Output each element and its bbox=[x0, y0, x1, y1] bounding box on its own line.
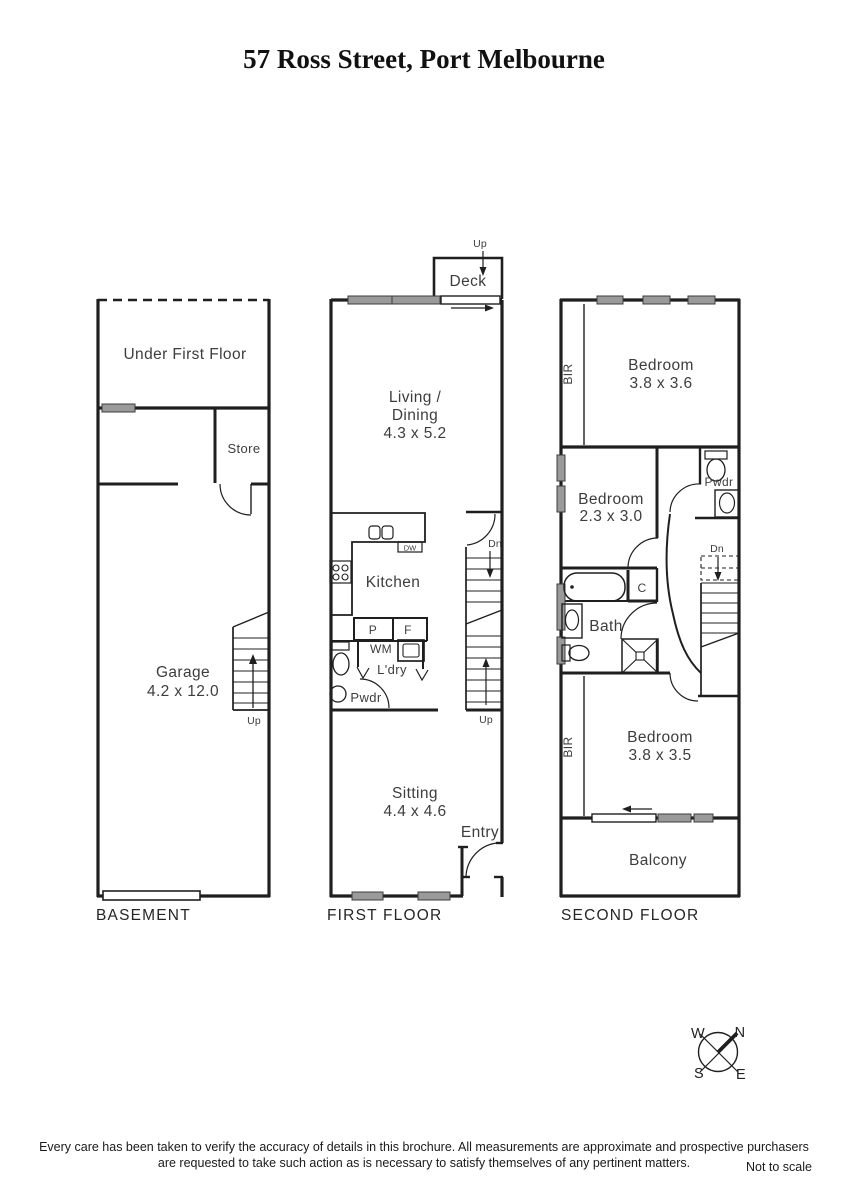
bed1-dims: 3.8 x 3.6 bbox=[629, 375, 692, 392]
floor-plan-svg: Under First Floor Store Garage 4.2 x 12.… bbox=[0, 0, 848, 1200]
kitchen-bench bbox=[330, 513, 425, 615]
window bbox=[557, 637, 565, 664]
toilet-icon bbox=[705, 451, 727, 459]
window bbox=[557, 455, 565, 481]
under-first-floor-label: Under First Floor bbox=[123, 346, 246, 363]
window bbox=[557, 486, 565, 512]
sitting-dims: 4.4 x 4.6 bbox=[383, 803, 446, 820]
washing-machine-label: WM bbox=[370, 642, 392, 656]
deck-label: Deck bbox=[450, 273, 487, 290]
kitchen-label: Kitchen bbox=[366, 574, 421, 591]
bath-label: Bath bbox=[589, 618, 623, 635]
compass-south-label: S bbox=[694, 1066, 704, 1082]
compass-north-label: N bbox=[735, 1025, 746, 1041]
store-label: Store bbox=[227, 441, 260, 456]
sitting-label: Sitting bbox=[392, 785, 438, 802]
washing-machine-icon bbox=[398, 640, 424, 661]
garage-dims: 4.2 x 12.0 bbox=[147, 683, 219, 700]
compass-east-label: E bbox=[736, 1067, 746, 1083]
compass-icon: W N S E bbox=[691, 1025, 746, 1083]
first-floor-label: FIRST FLOOR bbox=[327, 907, 442, 924]
basement-up-arrow-icon bbox=[249, 654, 257, 708]
garage-door bbox=[103, 891, 200, 900]
cooktop-icon bbox=[330, 561, 351, 583]
window bbox=[418, 892, 450, 900]
up-label: Up bbox=[479, 714, 493, 726]
basement-window bbox=[102, 404, 135, 412]
disclaimer-line-2: are requested to take such action as is … bbox=[0, 1155, 848, 1171]
deck-up-label: Up bbox=[473, 238, 487, 250]
bed3-dims: 3.8 x 3.5 bbox=[628, 747, 691, 764]
bed2-dims: 2.3 x 3.0 bbox=[579, 508, 642, 525]
window bbox=[352, 892, 383, 900]
dn-label: Dn bbox=[710, 543, 724, 555]
window bbox=[643, 296, 670, 304]
window bbox=[392, 296, 440, 304]
fridge-label: F bbox=[404, 623, 412, 637]
disclaimer-line-1: Every care has been taken to verify the … bbox=[0, 1139, 848, 1155]
basement-up-label: Up bbox=[247, 715, 261, 727]
living-label-2: Dining bbox=[392, 407, 438, 424]
second-floor-stairs-icon bbox=[701, 556, 739, 696]
second-floor-label: SECOND FLOOR bbox=[561, 907, 699, 924]
living-label-1: Living / bbox=[389, 389, 442, 406]
living-dims: 4.3 x 5.2 bbox=[383, 425, 446, 442]
cupboard-label: C bbox=[637, 581, 646, 595]
window bbox=[348, 296, 392, 304]
disclaimer: Every care has been taken to verify the … bbox=[0, 1139, 848, 1171]
slider-arrow-icon bbox=[622, 806, 652, 813]
bir-top-label: BIR bbox=[561, 363, 575, 384]
balcony-label: Balcony bbox=[629, 852, 687, 869]
bed1-label: Bedroom bbox=[628, 357, 694, 374]
bed3-label: Bedroom bbox=[627, 729, 693, 746]
second-floor-plan: BIR Bedroom 3.8 x 3.6 Bedroom 2.3 x 3.0 … bbox=[557, 296, 740, 924]
compass-west-label: W bbox=[691, 1026, 705, 1042]
laundry-label: L'dry bbox=[377, 662, 407, 677]
window bbox=[688, 296, 715, 304]
dn-arrow-icon bbox=[715, 557, 722, 581]
bir-bottom-label: BIR bbox=[561, 736, 575, 757]
basement-plan: Under First Floor Store Garage 4.2 x 12.… bbox=[96, 299, 270, 924]
slider-arrow-icon bbox=[451, 305, 494, 312]
pantry-label: P bbox=[369, 623, 377, 637]
window bbox=[658, 814, 691, 822]
scale-note: Not to scale bbox=[746, 1160, 812, 1174]
bed2-label: Bedroom bbox=[578, 491, 644, 508]
floorplan-page: 57 Ross Street, Port Melbourne bbox=[0, 0, 848, 1200]
powder-label: Pwdr bbox=[705, 475, 734, 489]
sliding-door bbox=[592, 814, 656, 822]
powder-label: Pwdr bbox=[350, 690, 381, 705]
first-floor-plan: Deck Up Living / Dining 4.3 x 5.2 Kitche… bbox=[327, 238, 503, 924]
entry-label: Entry bbox=[461, 824, 499, 841]
garage-label: Garage bbox=[156, 664, 210, 681]
toilet-icon bbox=[332, 642, 349, 650]
sink-icon bbox=[369, 526, 380, 539]
basement-floor-label: BASEMENT bbox=[96, 907, 191, 924]
basement-walls bbox=[97, 299, 270, 897]
sliding-door bbox=[441, 296, 500, 304]
up-arrow-icon bbox=[483, 658, 490, 705]
dishwasher-label: DW bbox=[404, 544, 417, 553]
dn-label: Dn bbox=[488, 538, 502, 550]
window bbox=[597, 296, 623, 304]
window bbox=[694, 814, 713, 822]
dn-arrow-icon bbox=[487, 551, 494, 578]
sink-icon bbox=[382, 526, 393, 539]
